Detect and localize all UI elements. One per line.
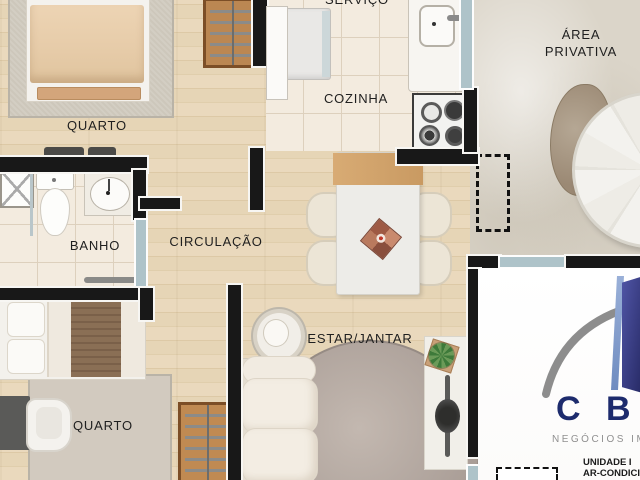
room-label-circulacao: CIRCULAÇÃO (169, 234, 262, 249)
hanger-rail (207, 405, 209, 480)
wall (0, 288, 143, 300)
room-label-cozinha: COZINHA (324, 91, 388, 106)
basin-drain (106, 191, 110, 195)
room-label-quarto2: QUARTO (73, 418, 133, 433)
wall (253, 0, 267, 66)
basin-faucet (108, 179, 110, 191)
floorplan-canvas: SERVIÇO COZINHA ÁREA PRIVATIVA QUARTO BA… (0, 0, 640, 480)
wall (0, 157, 147, 172)
wall (250, 148, 263, 210)
room-label-estar-jantar: ESTAR/JANTAR (307, 331, 412, 346)
sofa-cushion (242, 378, 318, 434)
bath-mat (84, 277, 140, 283)
stove (412, 93, 470, 153)
toilet (36, 172, 72, 236)
ac-unit-dashed-marker (476, 154, 510, 232)
wall (140, 288, 153, 320)
glass-partition (136, 220, 146, 290)
wall (140, 198, 180, 209)
side-table (253, 309, 305, 363)
legend-line1: UNIDADE I (583, 457, 640, 468)
logo-text: C B (556, 390, 639, 429)
bed-bench (37, 87, 141, 100)
room-label-servico: SERVIÇO (325, 0, 389, 7)
door-leaf (266, 6, 288, 100)
logo-building (622, 270, 640, 396)
centerpiece-flower (375, 232, 388, 245)
glass-window (500, 257, 566, 267)
sofa (236, 356, 318, 480)
room-label-quarto1: QUARTO (67, 118, 127, 133)
legend-text: UNIDADE I AR-CONDICI (583, 457, 640, 479)
bed-pillow (7, 339, 45, 374)
kitchen-sink (419, 5, 455, 47)
wall (228, 285, 241, 480)
chair-seat (36, 407, 62, 439)
sink-drain (432, 22, 436, 26)
logo-tagline: NEGÓCIOS IMO (552, 434, 640, 445)
shower-glass (30, 170, 33, 236)
double-bed (0, 296, 146, 380)
legend-ac-symbol (496, 467, 558, 480)
kitchen-counter (408, 0, 465, 92)
bed-throw (71, 299, 121, 377)
glass-window (461, 0, 472, 88)
hanger-rail (232, 1, 234, 65)
laundry-tank-edge (322, 11, 330, 77)
burner (445, 126, 465, 146)
side-table-inner (263, 319, 289, 347)
sofa-cushion (242, 428, 318, 480)
burner (421, 102, 442, 123)
bed-pillow (7, 302, 45, 337)
burner (444, 100, 465, 121)
plant (429, 343, 454, 368)
wall (133, 170, 146, 220)
logo-card: C B NEGÓCIOS IMO UNIDADE I AR-CONDICI (478, 268, 640, 480)
wall (464, 88, 477, 152)
bed-duvet (30, 5, 144, 83)
toilet-tank-button (52, 178, 56, 182)
toilet-bowl (40, 188, 70, 236)
burner (419, 125, 440, 146)
bathroom-basin (90, 177, 130, 211)
desk-chair (26, 398, 72, 452)
bathroom-vanity (84, 170, 135, 216)
room-label-area-privativa: ÁREA PRIVATIVA (535, 26, 627, 60)
tv-base (435, 399, 460, 433)
legend-line2: AR-CONDICI (583, 468, 640, 479)
shower-box (0, 170, 34, 208)
double-bed (26, 0, 150, 102)
room-label-banho: BANHO (70, 238, 120, 253)
